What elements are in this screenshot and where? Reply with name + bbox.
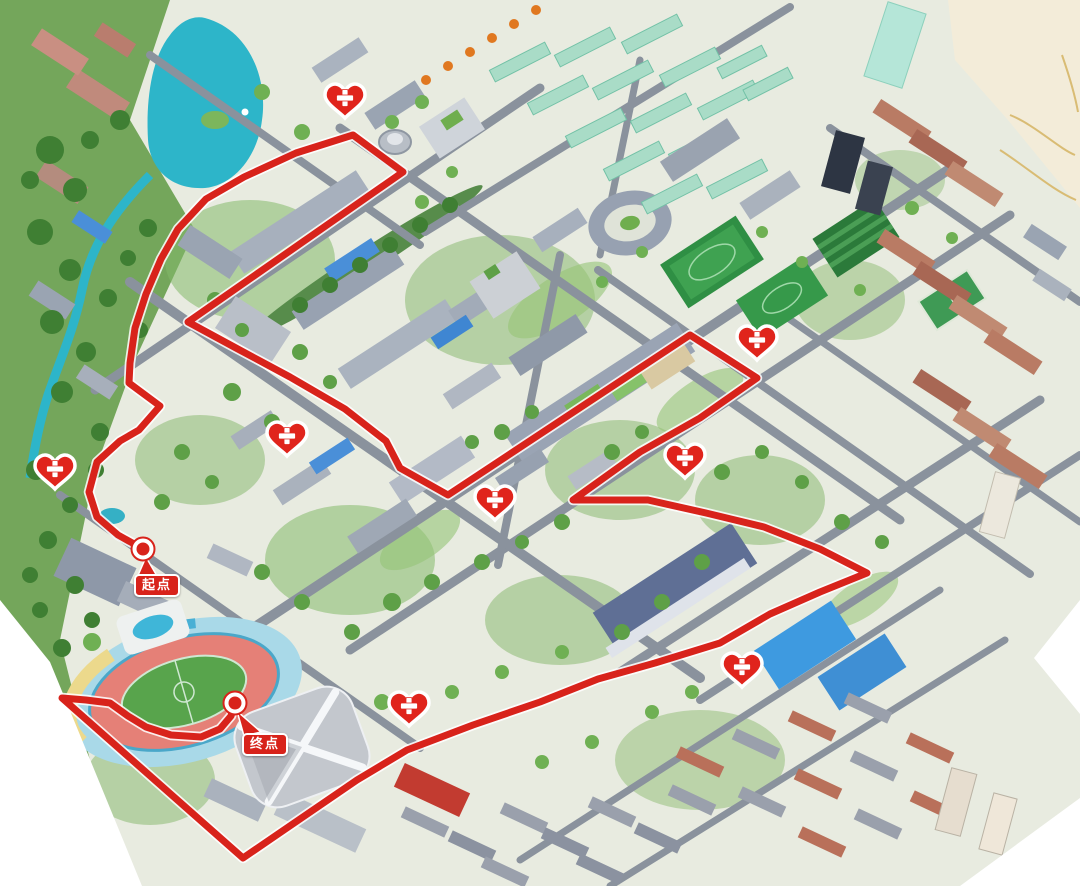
finish-point-dot bbox=[224, 692, 247, 715]
start-label: 起点 bbox=[134, 574, 180, 597]
campus-map: 起点 终点 bbox=[0, 0, 1080, 886]
start-label-text: 起点 bbox=[142, 577, 172, 592]
finish-label: 终点 bbox=[242, 733, 288, 756]
map-canvas bbox=[0, 0, 1080, 886]
finish-label-text: 终点 bbox=[250, 736, 280, 751]
dome-building bbox=[379, 130, 411, 154]
start-point-dot bbox=[132, 538, 155, 561]
map-artwork bbox=[0, 0, 1080, 886]
